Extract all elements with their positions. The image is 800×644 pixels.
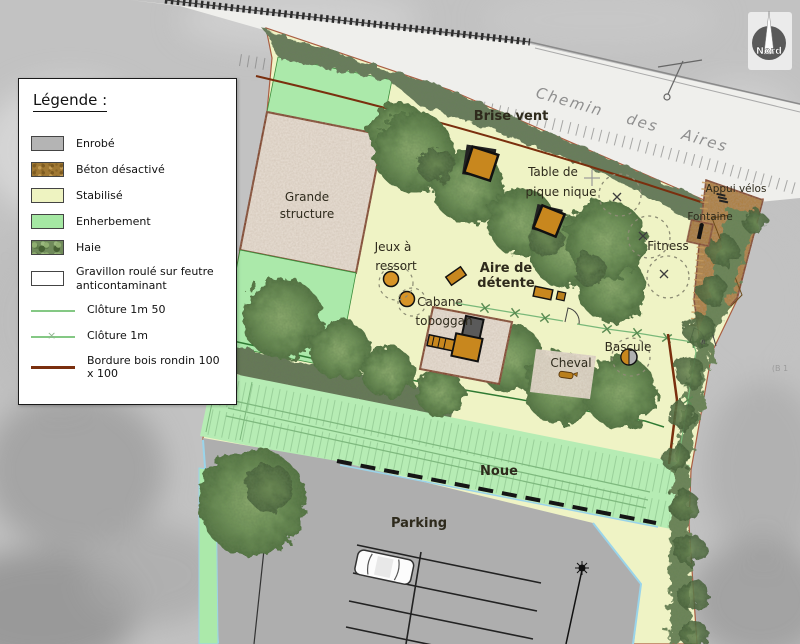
- label-cheval: Cheval: [550, 356, 591, 370]
- north-arrow: Nord: [748, 11, 792, 70]
- north-label: Nord: [756, 46, 782, 57]
- legend-item-label: Enrobé: [76, 137, 115, 151]
- legend-swatch-enrobe: [31, 136, 64, 151]
- legend: Légende : Enrobé Béton désactivé Stabili…: [18, 78, 237, 405]
- label-fitness: Fitness: [647, 239, 689, 253]
- legend-swatch-stabilise: [31, 188, 64, 203]
- legend-item-cloture-1m: × Clôture 1m: [31, 328, 226, 345]
- legend-swatch-beton-desactive: [31, 162, 64, 177]
- legend-item-bordure-bois: Bordure bois rondin 100 x 100: [31, 354, 226, 382]
- legend-item-enrobe: Enrobé: [31, 135, 226, 152]
- legend-swatch-enherbement: [31, 214, 64, 229]
- label-aire-2: détente: [477, 276, 535, 291]
- fontaine-icon: [687, 220, 713, 246]
- label-bascule: Bascule: [605, 340, 652, 354]
- label-parcel-ref: (B 1: [772, 364, 788, 373]
- legend-item-label: Stabilisé: [76, 189, 123, 203]
- site-plan: Brise vent Grande structure Table de piq…: [0, 0, 800, 644]
- legend-item-label: Bordure bois rondin 100 x 100: [87, 354, 226, 382]
- label-grande-structure-1: Grande: [285, 190, 329, 204]
- label-brise-vent: Brise vent: [474, 109, 549, 124]
- legend-item-label: Haie: [76, 241, 101, 255]
- label-appui-velos: Appui vélos: [706, 183, 767, 195]
- legend-item-label: Gravillon roulé sur feutre anticontamina…: [76, 265, 226, 293]
- label-jeux-1: Jeux à: [374, 240, 412, 254]
- legend-item-label: Enherbement: [76, 215, 151, 229]
- legend-item-label: Clôture 1m 50: [87, 303, 166, 317]
- label-table-1: Table de: [527, 165, 578, 179]
- legend-swatch-cloture-1m50: [31, 303, 75, 318]
- legend-item-haie: Haie: [31, 239, 226, 256]
- legend-item-enherbement: Enherbement: [31, 213, 226, 230]
- legend-item-stabilise: Stabilisé: [31, 187, 226, 204]
- label-noue: Noue: [480, 464, 518, 479]
- legend-swatch-bordure-bois: [31, 360, 75, 375]
- label-fontaine: Fontaine: [687, 211, 732, 223]
- label-aire-1: Aire de: [480, 261, 533, 276]
- legend-rows: Enrobé Béton désactivé Stabilisé Enherbe…: [31, 135, 226, 381]
- legend-swatch-gravillon: [31, 271, 64, 286]
- label-cabane-2: toboggan: [415, 314, 472, 328]
- label-table-2: pique nique: [526, 185, 597, 199]
- label-parking: Parking: [391, 516, 447, 531]
- legend-swatch-cloture-1m: ×: [31, 329, 75, 344]
- legend-item-beton-desactive: Béton désactivé: [31, 161, 226, 178]
- legend-swatch-haie: [31, 240, 64, 255]
- legend-item-label: Clôture 1m: [87, 329, 148, 343]
- label-grande-structure-2: structure: [280, 207, 334, 221]
- legend-title: Légende :: [33, 91, 107, 112]
- legend-item-gravillon: Gravillon roulé sur feutre anticontamina…: [31, 265, 226, 293]
- legend-item-label: Béton désactivé: [76, 163, 165, 177]
- label-cabane-1: Cabane: [417, 295, 463, 309]
- legend-item-cloture-1m50: Clôture 1m 50: [31, 302, 226, 319]
- label-jeux-2: ressort: [375, 259, 417, 273]
